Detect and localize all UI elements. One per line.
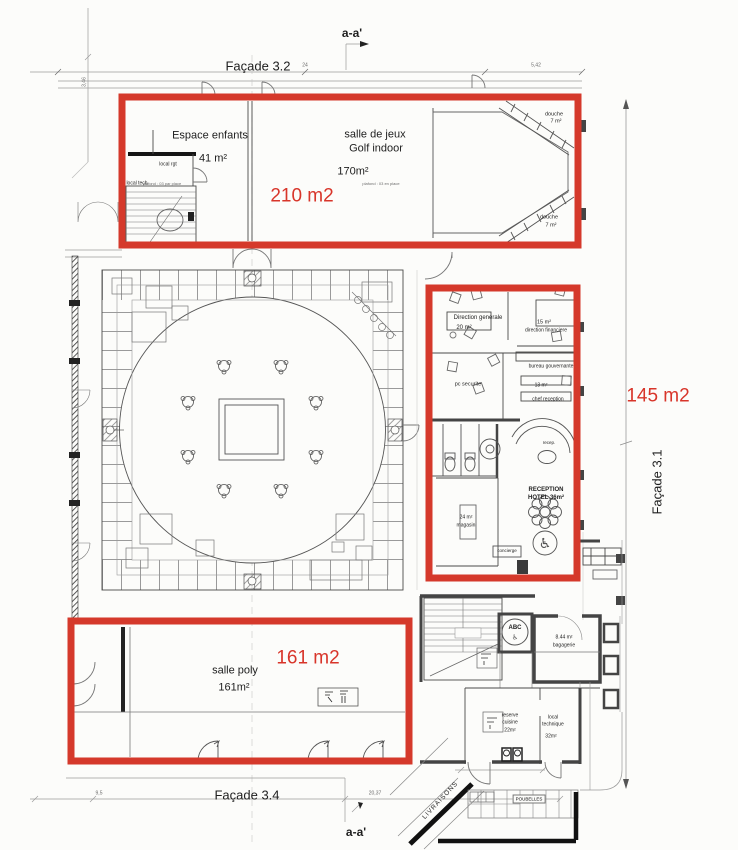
entrance-strip [578, 540, 625, 624]
reserve-cuisine-line2: cuisine [502, 721, 518, 726]
ascenseur-abc-label: ABC [509, 625, 522, 631]
recep-desk-label: recep. [543, 441, 556, 446]
dim-9-5: 9,5 [96, 792, 103, 797]
left-exterior-wall [69, 202, 118, 620]
bagagerie-area: 8.44 m² [556, 636, 573, 641]
reserve-cuisine-line1: reserve [502, 714, 519, 719]
local-tech-label: local tech [126, 182, 147, 187]
floor-plan-canvas: Façade 3.2 24 5,42 3,46 a-a' 210 m2 Espa… [0, 0, 738, 850]
courtyard [102, 249, 452, 590]
magasin-area: 24 m² [460, 516, 473, 521]
direction-generale-area: 20 m² [456, 325, 471, 331]
douche-top-area: 7 m² [551, 119, 562, 125]
area-annotation-210: 210 m2 [270, 187, 333, 206]
chef-reception-name: chef reception [532, 398, 563, 403]
espace-enfants-note: plafond : 03 par place [143, 182, 181, 186]
area-annotation-145: 145 m2 [626, 387, 689, 406]
salle-poly-area: 161m² [218, 683, 249, 694]
section-marker-bottom: a-a' [346, 826, 366, 838]
direction-financiere-name: direction financiere [525, 329, 567, 334]
dim-24: 24 [302, 64, 308, 69]
dim-20-37: 20,37 [369, 792, 382, 797]
local-rgt-label: local rgt [159, 163, 177, 168]
facade-3-1-label: Façade 3.1 [651, 449, 664, 514]
salle-de-jeux-name: salle de jeux [344, 130, 405, 141]
facade-3-2-label: Façade 3.2 [225, 60, 290, 73]
bureau-gouvernante-label: bureau gouvernante [529, 365, 574, 370]
area-annotation-161: 161 m2 [276, 649, 339, 668]
section-marker-top: a-a' [342, 27, 362, 39]
douche-bottom-area: 7 m² [546, 223, 557, 229]
reserve-cuisine-area: 22m² [504, 729, 515, 734]
direction-financiere-area: 15 m² [537, 320, 551, 326]
salle-de-jeux-note: plafond : 03 en place [362, 182, 399, 186]
dim-3-46: 3,46 [83, 77, 88, 87]
douche-top-name: douche [545, 112, 563, 118]
concierge-label: concierge [497, 549, 517, 554]
dim-5-42: 5,42 [531, 64, 541, 69]
salle-poly-walls [71, 627, 405, 799]
reception-hotel-line2: HOTEL 36m² [528, 495, 564, 501]
salle-poly-name: salle poly [212, 666, 258, 677]
local-technique-area: 32m² [545, 735, 556, 740]
salle-de-jeux-subtitle: Golf indoor [349, 144, 403, 155]
poubelles-label: POUBELLES [513, 795, 546, 804]
douche-bottom-name: douche [540, 215, 558, 221]
wheelchair-small-icon: ♿ [512, 635, 518, 642]
wheelchair-icon: ♿ [539, 536, 552, 550]
facade-3-4-label: Façade 3.4 [214, 789, 279, 802]
espace-enfants-name: Espace enfants [172, 131, 248, 142]
pc-securite-label: pc securite [455, 382, 482, 388]
bagagerie-name: bagagerie [553, 644, 575, 649]
local-technique-line2: technique [542, 723, 564, 728]
chef-reception-area: 13 m² [535, 384, 548, 389]
espace-enfants-area: 41 m² [199, 154, 227, 165]
direction-generale-name: Direction generale [454, 315, 503, 321]
reception-hotel-line1: RECEPTION [528, 487, 563, 493]
magasin-name: magasin [457, 524, 476, 529]
local-technique-line1: local [548, 716, 558, 721]
salle-de-jeux-area: 170m² [337, 167, 368, 178]
livraisons-poubelles [390, 738, 578, 849]
office-chairs [447, 285, 571, 394]
plan-linework [0, 0, 738, 850]
